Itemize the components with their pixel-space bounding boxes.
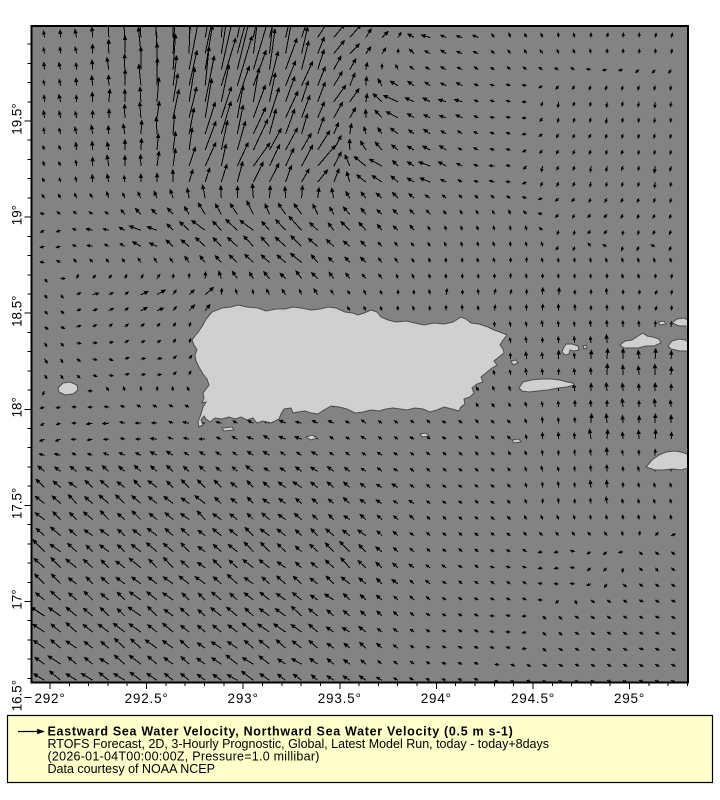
svg-text:295°: 295°	[614, 691, 645, 706]
svg-text:292°: 292°	[34, 691, 65, 706]
svg-text:293°: 293°	[228, 691, 259, 706]
svg-text:17.5°: 17.5°	[10, 488, 25, 519]
svg-text:17°: 17°	[10, 589, 25, 609]
svg-text:294.5°: 294.5°	[511, 691, 555, 706]
svg-text:293.5°: 293.5°	[318, 691, 362, 706]
svg-text:18°: 18°	[10, 397, 25, 417]
svg-text:294°: 294°	[421, 691, 452, 706]
svg-text:19.5°: 19.5°	[10, 103, 25, 134]
svg-text:19°: 19°	[10, 205, 25, 225]
svg-text:16.5°: 16.5°	[10, 680, 25, 711]
svg-text:Data courtesy of NOAA NCEP: Data courtesy of NOAA NCEP	[48, 762, 215, 776]
svg-text:18.5°: 18.5°	[10, 295, 25, 326]
svg-text:292.5°: 292.5°	[125, 691, 169, 706]
